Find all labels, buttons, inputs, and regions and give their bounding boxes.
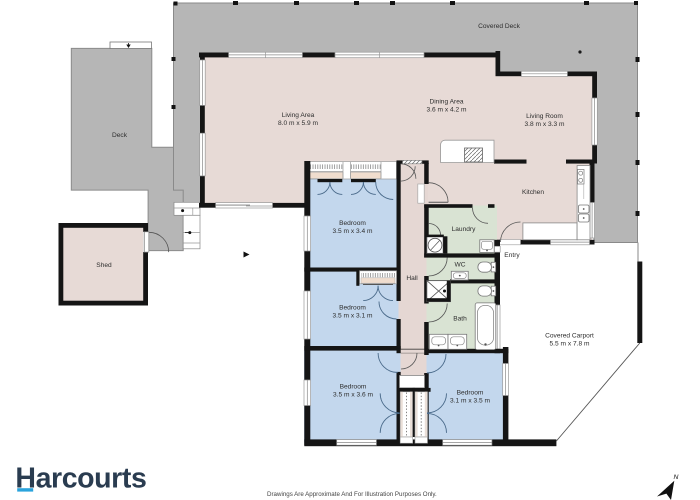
svg-text:Bedroom: Bedroom: [457, 390, 484, 397]
svg-text:Hall: Hall: [406, 275, 418, 282]
svg-text:5.5 m x 7.8 m: 5.5 m x 7.8 m: [550, 341, 590, 348]
svg-text:3.6 m x 4.2 m: 3.6 m x 4.2 m: [427, 107, 467, 114]
svg-text:Dining Area: Dining Area: [429, 99, 463, 106]
svg-text:Covered Deck: Covered Deck: [478, 23, 520, 30]
svg-text:Deck: Deck: [112, 132, 128, 139]
svg-text:WC: WC: [455, 262, 466, 269]
svg-text:3.5 m x 3.4 m: 3.5 m x 3.4 m: [333, 228, 373, 235]
svg-text:Bath: Bath: [453, 316, 467, 323]
svg-text:N: N: [674, 474, 679, 481]
svg-text:Bedroom: Bedroom: [339, 220, 366, 227]
svg-text:3.1 m x 3.5 m: 3.1 m x 3.5 m: [450, 398, 490, 405]
svg-text:Bedroom: Bedroom: [340, 384, 367, 391]
svg-text:Covered Carport: Covered Carport: [545, 333, 594, 340]
svg-text:8.0 m x 5.9 m: 8.0 m x 5.9 m: [278, 120, 318, 127]
svg-text:3.5 m x 3.6 m: 3.5 m x 3.6 m: [333, 392, 373, 399]
svg-text:Drawings Are Approximate And F: Drawings Are Approximate And For Illustr…: [267, 491, 437, 498]
svg-text:3.8 m x 3.3 m: 3.8 m x 3.3 m: [525, 121, 565, 128]
svg-text:Entry: Entry: [504, 252, 520, 259]
svg-text:Laundry: Laundry: [452, 226, 477, 233]
svg-text:Bedroom: Bedroom: [339, 305, 366, 312]
svg-text:Kitchen: Kitchen: [522, 189, 544, 196]
svg-text:3.5 m x 3.1 m: 3.5 m x 3.1 m: [333, 313, 373, 320]
svg-text:Living Room: Living Room: [526, 113, 563, 120]
svg-text:Living Area: Living Area: [282, 112, 315, 119]
svg-text:Shed: Shed: [96, 262, 112, 269]
svg-text:Harcourts: Harcourts: [15, 462, 146, 494]
